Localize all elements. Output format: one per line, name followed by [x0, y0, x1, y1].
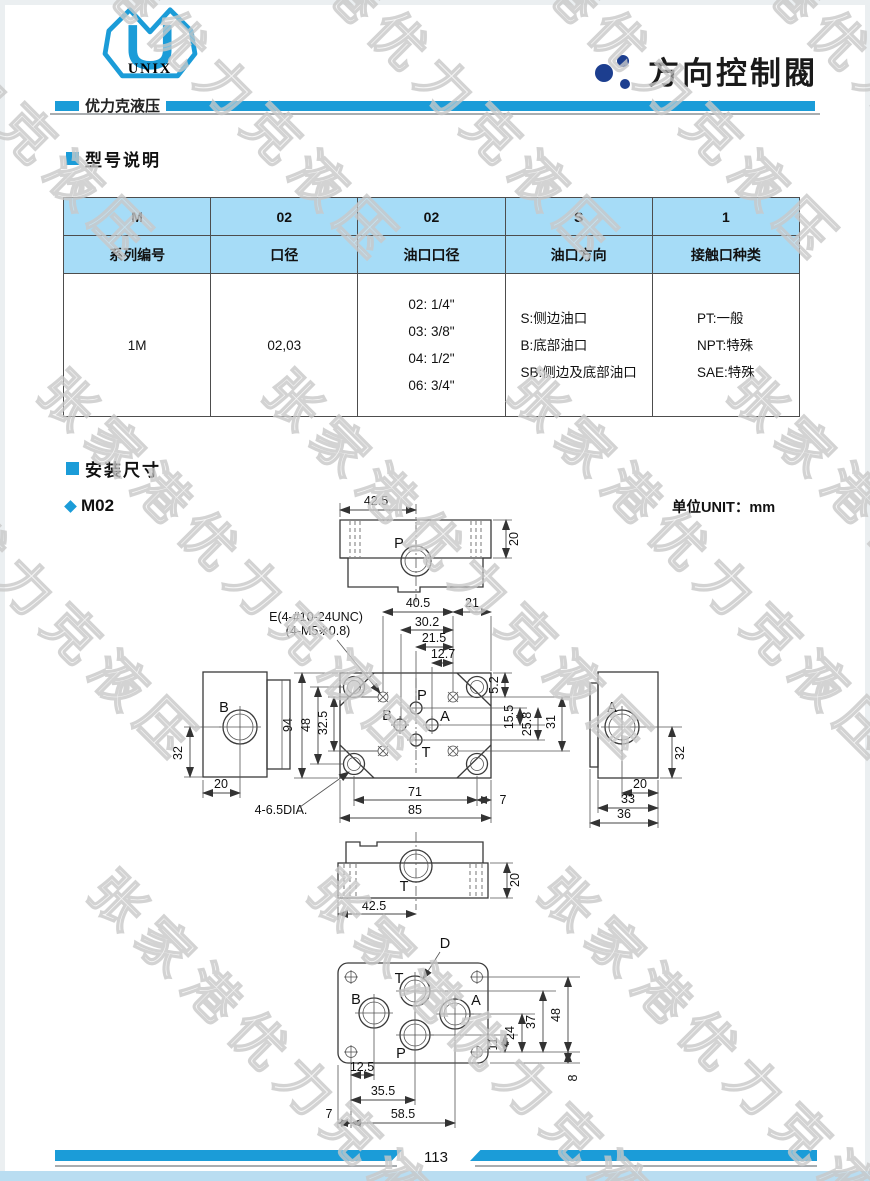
table-cell: 油口方向	[505, 236, 652, 274]
dimension-drawing: P 42.5 20	[0, 490, 870, 1150]
port-label-b: B	[351, 992, 361, 1008]
dim-48: 48	[549, 1008, 563, 1022]
table-cell: 接触口种类	[652, 236, 799, 274]
port-label-b: B	[382, 708, 392, 724]
dim-25-8: 25.8	[520, 712, 534, 736]
dim-20: 20	[633, 777, 647, 791]
section-bullet-icon	[66, 152, 79, 165]
cell-line: PT:一般	[697, 305, 755, 332]
page-title: 方向控制閥	[648, 48, 818, 93]
dim-30-2: 30.2	[415, 615, 439, 629]
mounting-face-view: T B A P D 11 24 37 48 8	[326, 936, 580, 1128]
dim-85: 85	[408, 803, 422, 817]
port-label-d: D	[440, 936, 450, 952]
header-divider	[50, 113, 820, 115]
dim-32-5: 32.5	[316, 711, 330, 735]
table-cell: M	[64, 198, 211, 236]
cell-line: 02: 1/4"	[408, 291, 454, 318]
section-mounting: 安装尺寸	[66, 456, 161, 481]
port-label-a: A	[607, 700, 617, 716]
title-dots-icon	[592, 50, 638, 92]
dim-32: 32	[673, 746, 687, 760]
title-row: 方向控制閥	[592, 48, 818, 93]
unix-logo-shield-icon: UNIX	[95, 6, 205, 94]
dim-11: 11	[486, 1037, 500, 1050]
port-label-b: B	[219, 700, 229, 716]
brand-bar-left	[55, 101, 79, 111]
note-e-line1: E(4-#10-24UNC)	[269, 610, 363, 624]
brand-bar-long	[166, 101, 815, 111]
left-side-view: B 32 20	[171, 672, 290, 798]
table-body-row: 1M 02,03 02: 1/4" 03: 3/8" 04: 1/2" 06: …	[64, 274, 800, 417]
footer-line-right	[475, 1165, 817, 1167]
section-bullet-icon	[66, 462, 79, 475]
table-label-row: 系列编号 口径 油口口径 油口方向 接触口种类	[64, 236, 800, 274]
dim-40-5: 40.5	[406, 596, 430, 610]
footer-bar-right	[470, 1150, 817, 1161]
dim-8: 8	[566, 1074, 580, 1081]
port-label-p: P	[417, 688, 427, 704]
table-cell: S:侧边油口 B:底部油口 SB:侧边及底部油口	[505, 274, 652, 417]
section-model-title: 型号说明	[85, 146, 161, 171]
cell-line: 06: 3/4"	[408, 372, 454, 399]
table-cell: 口径	[211, 236, 358, 274]
dim-32: 32	[171, 746, 185, 760]
table-cell: 02: 1/4" 03: 3/8" 04: 1/2" 06: 3/4"	[358, 274, 505, 417]
cell-line: SAE:特殊	[697, 359, 755, 386]
table-cell: 1	[652, 198, 799, 236]
section-model: 型号说明	[66, 146, 161, 171]
table-cell: 02	[211, 198, 358, 236]
note-e-line2: (4-M5※0.8)	[286, 624, 351, 638]
note-dia: 4-6.5DIA.	[255, 803, 308, 817]
dim-15-5: 15.5	[502, 705, 516, 729]
catalog-page: UNIX 方向控制閥 优力克液压 型号说明 M 02 02 S 1 系列编号 口…	[0, 0, 870, 1181]
dim-71: 71	[408, 785, 422, 799]
dim-31: 31	[544, 715, 558, 729]
table-cell: 02	[358, 198, 505, 236]
dim-35-5: 35.5	[371, 1084, 395, 1098]
port-label-a: A	[471, 993, 481, 1009]
port-label-t: T	[422, 745, 431, 761]
bottom-view: T 42.5 20	[338, 832, 522, 920]
page-number: 113	[402, 1149, 470, 1166]
table-code-row: M 02 02 S 1	[64, 198, 800, 236]
dim-94: 94	[281, 718, 295, 732]
mount-ports	[355, 972, 474, 1054]
dim-21: 21	[465, 596, 479, 610]
dim-12-7: 12.7	[431, 647, 455, 661]
footer-bar-left	[55, 1150, 402, 1161]
cell-line: S:侧边油口	[521, 305, 637, 332]
table-cell: 油口口径	[358, 236, 505, 274]
dim-36: 36	[617, 807, 631, 821]
cell-line: B:底部油口	[521, 332, 637, 359]
section-mounting-title: 安装尺寸	[85, 456, 161, 481]
port-label-a: A	[440, 709, 450, 725]
right-side-view: A 32 20 33 36	[590, 672, 687, 828]
model-code-table: M 02 02 S 1 系列编号 口径 油口口径 油口方向 接触口种类 1M 0…	[63, 197, 800, 417]
dim-5-2: 5.2	[487, 676, 501, 693]
dim-7: 7	[500, 793, 507, 807]
port-label-t: T	[400, 879, 409, 895]
dim-20: 20	[214, 777, 228, 791]
dim-48: 48	[299, 718, 313, 732]
dim-42-5: 42.5	[364, 494, 388, 508]
dim-20: 20	[508, 873, 522, 887]
dim-21-5: 21.5	[422, 631, 446, 645]
footer-line-left	[55, 1165, 397, 1167]
cell-line: 02,03	[267, 332, 301, 359]
dim-12-5: 12.5	[350, 1060, 374, 1074]
cell-line: SB:侧边及底部油口	[521, 359, 637, 386]
dim-33: 33	[621, 792, 635, 806]
port-label-t: T	[395, 971, 404, 987]
dim-24: 24	[503, 1026, 517, 1040]
cell-line: 1M	[128, 332, 147, 359]
dim-20: 20	[507, 532, 521, 546]
cell-line: 04: 1/2"	[408, 345, 454, 372]
dim-7: 7	[326, 1107, 333, 1121]
top-view: P 42.5 20	[340, 494, 521, 602]
table-cell: 02,03	[211, 274, 358, 417]
dim-37: 37	[524, 1015, 538, 1029]
table-cell: 系列编号	[64, 236, 211, 274]
cell-line: 03: 3/8"	[408, 318, 454, 345]
port-label-p: P	[396, 1046, 406, 1062]
page-edge-strip	[0, 1171, 870, 1181]
table-cell: 1M	[64, 274, 211, 417]
front-view: P B A T 40.5 21 30.2 21.5 12.7 E(4	[255, 596, 570, 823]
port-label-p: P	[394, 536, 404, 552]
dim-58-5: 58.5	[391, 1107, 415, 1121]
logo-text: UNIX	[128, 61, 172, 77]
table-cell: PT:一般 NPT:特殊 SAE:特殊	[652, 274, 799, 417]
dim-42-5: 42.5	[362, 899, 386, 913]
table-cell: S	[505, 198, 652, 236]
unix-logo: UNIX	[95, 6, 205, 94]
cell-line: NPT:特殊	[697, 332, 755, 359]
